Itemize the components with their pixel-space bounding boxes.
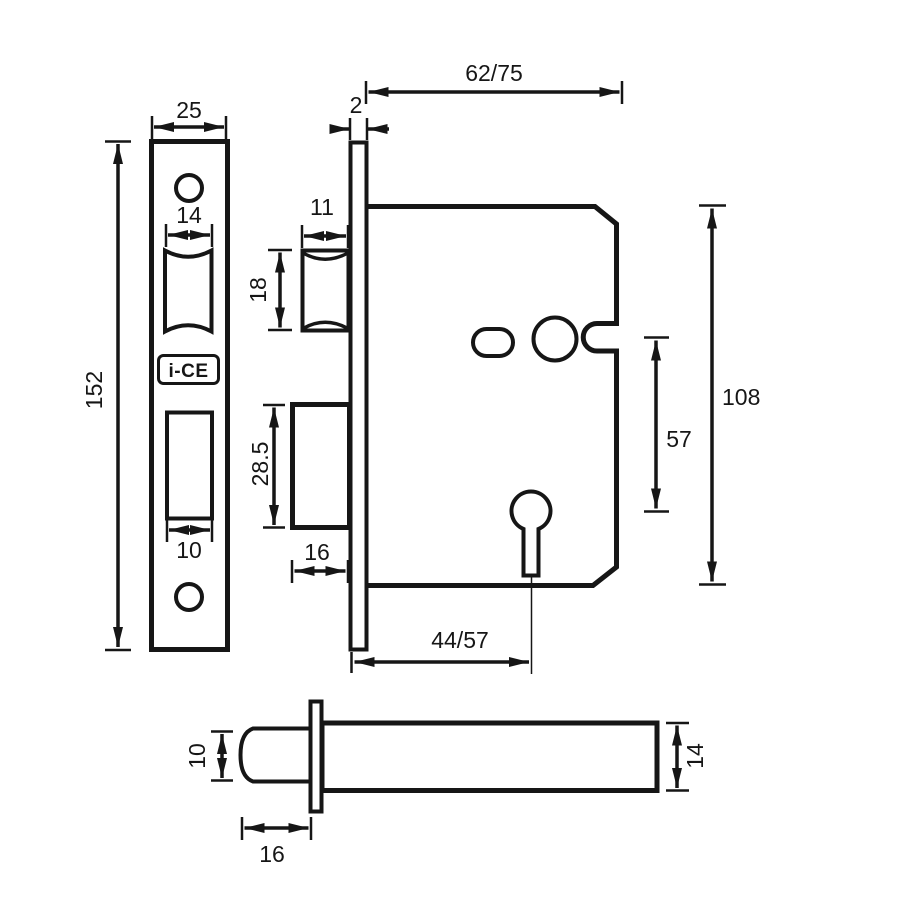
dim-label-latch-width: 11 (310, 194, 334, 220)
dim-label-latch-height: 18 (245, 277, 271, 303)
faceplate-edge (351, 143, 367, 650)
lock-case-outline (367, 207, 617, 586)
dim-case-depth: 62/75 (366, 60, 622, 104)
dim-label-latch-cutout-width: 14 (176, 202, 202, 228)
dim-label-backset: 44/57 (431, 627, 489, 653)
dim-label-faceplate-height: 152 (81, 371, 107, 409)
dim-faceplate-height: 152 (81, 142, 131, 651)
mortice-lock-technical-drawing: i-CE 25 152 14 18 10 (0, 0, 900, 900)
screw-hole-bottom (176, 584, 202, 610)
dim-label-faceplate-width: 25 (176, 97, 202, 123)
dim-label-spindle-to-keyhole: 57 (666, 426, 692, 452)
dim-label-bolt-throw: 16 (259, 841, 285, 867)
latchbolt-faceplate-edge (311, 702, 322, 812)
dim-latchcase-height: 14 (666, 723, 708, 791)
dim-label-case-depth: 62/75 (465, 60, 523, 86)
dim-faceplate-width: 25 (152, 97, 226, 139)
latchbolt-side-view (241, 702, 658, 812)
dim-deadbolt-height: 28.5 (247, 405, 285, 528)
dim-latch-height: 18 (245, 250, 292, 330)
slot-hole (473, 329, 513, 356)
deadbolt-cutout (167, 413, 212, 519)
dim-label-deadbolt-height: 28.5 (247, 442, 273, 487)
dim-backset: 44/57 (352, 627, 530, 673)
latchbolt-side (303, 251, 349, 331)
dim-label-deadbolt-cutout-width: 10 (176, 537, 202, 563)
dim-faceplate-thickness: 2 (330, 92, 389, 140)
dim-case-height: 108 (699, 206, 760, 585)
dim-spindle-to-keyhole: 57 (644, 338, 692, 512)
dim-label-latchcase-height: 14 (682, 743, 708, 769)
dim-label-faceplate-thickness: 2 (350, 92, 363, 118)
brand-logo-text: i-CE (169, 361, 209, 382)
dim-bolt-throw: 16 (242, 817, 311, 867)
spindle-hole (534, 318, 577, 361)
dim-latch-width: 11 (302, 194, 348, 248)
latch-cutout (165, 251, 212, 332)
latchbolt-case (322, 723, 657, 791)
dim-label-bolt-height: 10 (184, 743, 210, 769)
dim-label-case-height: 108 (722, 384, 760, 410)
screw-hole-top (176, 175, 202, 201)
latchbolt-nose (241, 729, 312, 782)
dim-bolt-height: 10 (184, 732, 233, 781)
dim-deadbolt-throw: 16 (292, 539, 348, 583)
lock-case-side-view (293, 143, 617, 675)
dim-label-deadbolt-throw: 16 (304, 539, 330, 565)
deadbolt-side (293, 405, 350, 528)
